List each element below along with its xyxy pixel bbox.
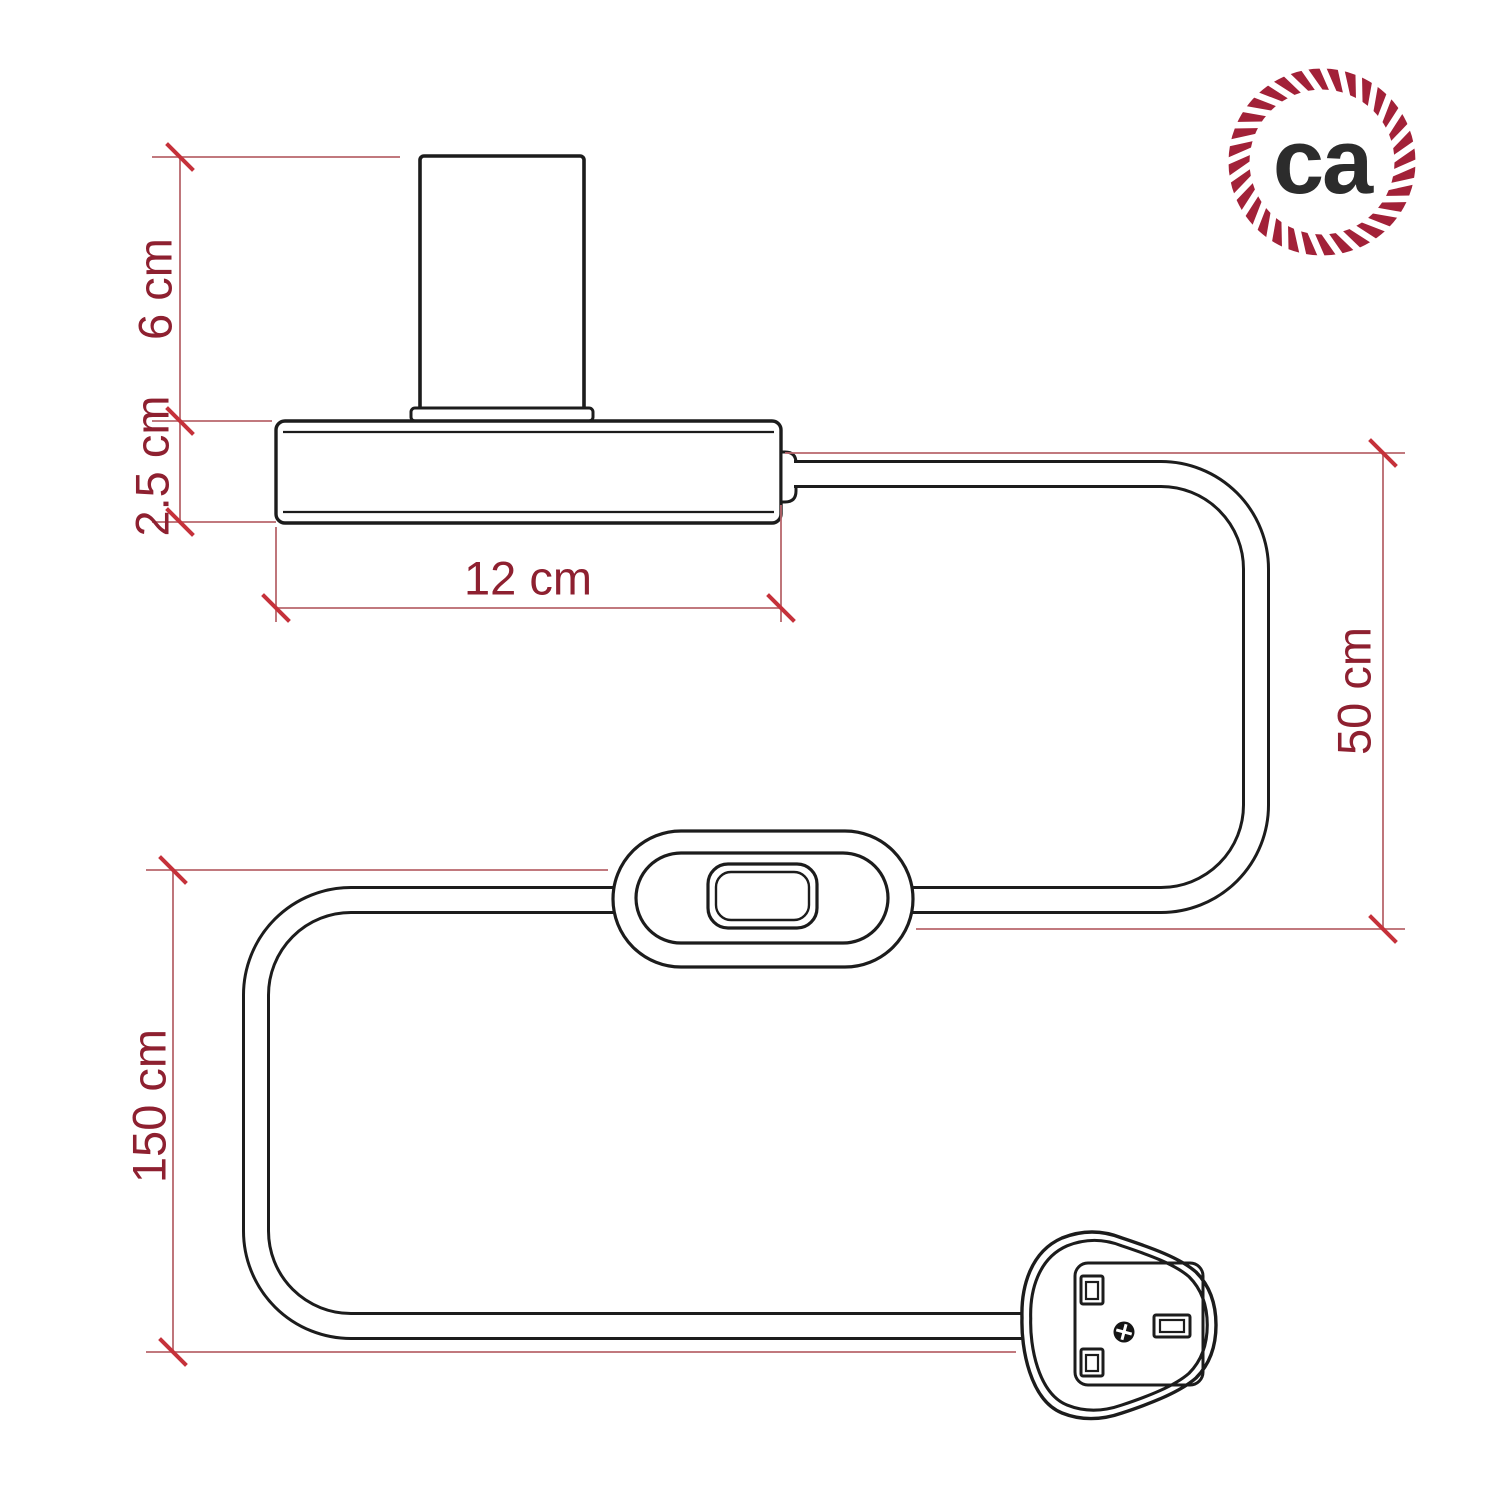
inline-switch: [613, 831, 913, 967]
cable-gland: [781, 452, 796, 502]
dimension-label-cable-lower: 150 cm: [123, 1029, 176, 1183]
lamp-socket-collar: [411, 408, 593, 421]
cable-switch-to-plug: [256, 900, 1026, 1326]
dimension-label-base-width: 12 cm: [464, 552, 592, 605]
cable-lower-run: [256, 900, 1026, 1326]
drawing-page: 6 cm 2.5 cm 12 cm 50 cm 150 cm: [0, 0, 1500, 1500]
dimension-label-base-height: 2.5 cm: [126, 395, 179, 536]
brand-logo: ca: [1226, 66, 1418, 258]
dimension-label-socket-height: 6 cm: [129, 238, 182, 340]
lamp-socket-cylinder: [420, 156, 584, 414]
technical-drawing-canvas: 6 cm 2.5 cm 12 cm 50 cm 150 cm: [0, 0, 1500, 1500]
cable-lower-run-inner: [256, 900, 1026, 1326]
dimension-label-cable-upper: 50 cm: [1328, 627, 1381, 755]
logo-text: ca: [1273, 111, 1374, 213]
lamp-holder: [276, 156, 796, 523]
lamp-base: [276, 421, 781, 523]
power-plug: [1022, 1232, 1216, 1419]
